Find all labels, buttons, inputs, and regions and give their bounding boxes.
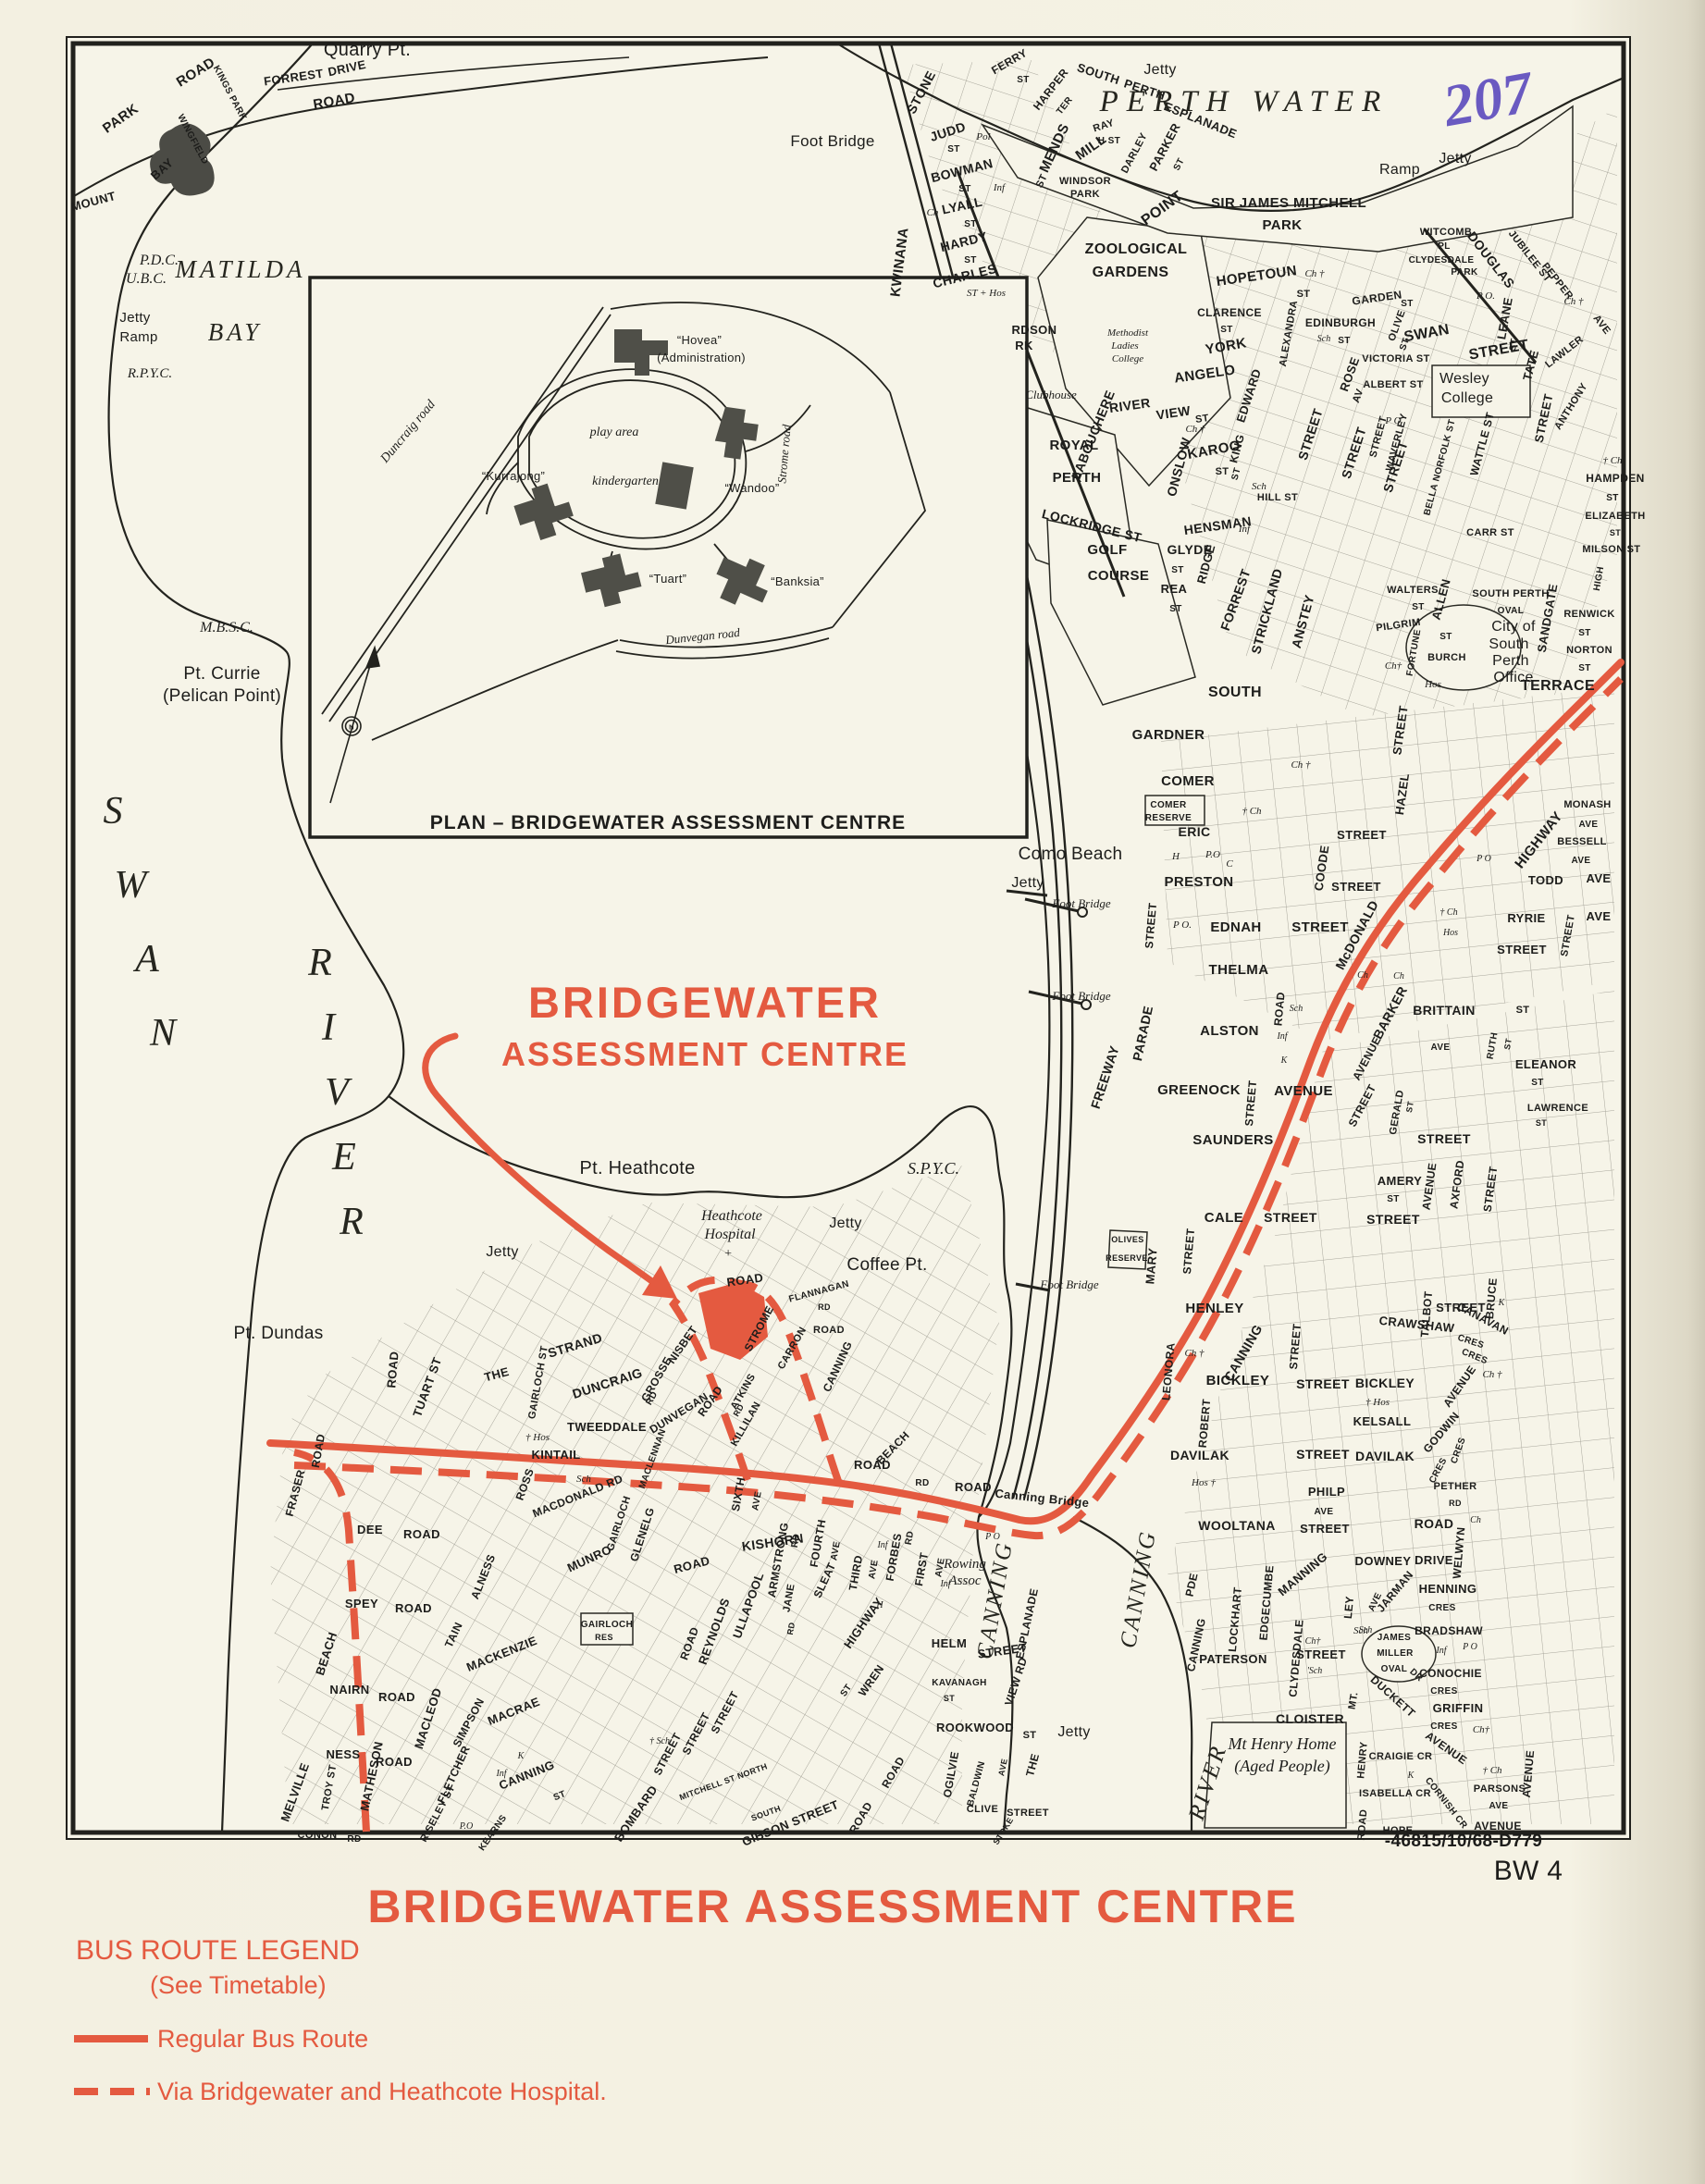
legend-heading: BUS ROUTE LEGEND <box>76 1935 360 1966</box>
map-label: ST <box>1610 528 1621 537</box>
map-label: Inf <box>1238 524 1252 535</box>
map-label: PERTH <box>1053 470 1102 486</box>
map-label: H <box>875 1600 883 1610</box>
map-label: † Hos <box>1365 1397 1390 1408</box>
map-label: STREET <box>1331 880 1381 894</box>
map-label: Ch † <box>1184 1348 1205 1359</box>
map-label: HENLEY <box>1185 1301 1243 1316</box>
map-label: Sch <box>1317 334 1330 344</box>
map-label: LEY <box>1341 1596 1356 1620</box>
map-label: Inf <box>993 182 1007 193</box>
map-label: GARDENS <box>1093 265 1169 280</box>
map-label: GOLF <box>1087 542 1127 558</box>
map-label: STREET <box>1296 1647 1346 1661</box>
map-label: Ch † <box>1482 1369 1502 1380</box>
map-label: AVE <box>1587 871 1612 885</box>
map-label: ST <box>1606 493 1619 503</box>
map-sheet: { "sheet": { "code": "BW 4", "plate": "-… <box>0 0 1705 2184</box>
map-label: N <box>149 1012 178 1055</box>
map-label: NORTON <box>1566 645 1612 656</box>
map-label: STREET <box>1337 828 1387 842</box>
map-label: BICKLEY <box>1355 1376 1415 1390</box>
map-label: U.B.C. <box>126 271 167 287</box>
map-label: (Administration) <box>657 351 746 364</box>
map-label: P O <box>984 1532 1000 1542</box>
map-label: RES <box>595 1633 613 1642</box>
map-label: Pt. Currie <box>183 664 260 684</box>
map-label: STREET <box>1366 1212 1420 1227</box>
map-label: “Banksia” <box>771 574 824 588</box>
map-label: EDNAH <box>1210 919 1261 935</box>
map-label: ST <box>1216 466 1229 477</box>
map-label: WINDSOR <box>1059 176 1111 187</box>
map-label: Hos † <box>1191 1477 1216 1488</box>
map-label: ELEANOR <box>1515 1057 1577 1071</box>
map-label: GREENOCK <box>1157 1082 1241 1098</box>
legend-subheading: (See Timetable) <box>150 1971 327 1999</box>
map-label: S.P.Y.C. <box>908 1159 959 1178</box>
map-label: COMER <box>1161 773 1215 789</box>
map-label: E <box>331 1136 356 1178</box>
legend-item-regular: Regular Bus Route <box>157 2025 368 2053</box>
map-label: † Ch <box>1439 907 1457 918</box>
map-label: CRES <box>1428 1603 1455 1613</box>
map-label: ST <box>1516 1005 1530 1016</box>
map-label: ROAD <box>395 1601 432 1615</box>
map-label: ROAD <box>403 1527 440 1541</box>
map-label: Mt Henry Home <box>1228 1734 1337 1753</box>
map-label: PARK <box>1263 217 1303 233</box>
map-label: CRES <box>1430 1686 1457 1697</box>
map-label: P O <box>1462 1642 1477 1652</box>
map-label: City of <box>1491 619 1536 635</box>
map-label: Inf <box>939 1579 951 1589</box>
map-label: PRESTON <box>1164 874 1233 890</box>
map-label: NAIRN <box>329 1683 369 1697</box>
map-label: College <box>1441 390 1493 406</box>
map-label: HENNING <box>1419 1582 1477 1596</box>
map-label: RYRIE <box>1507 911 1545 925</box>
legend-item-via-bridgewater: Via Bridgewater and Heathcote Hospital. <box>157 2078 607 2105</box>
map-label: ST <box>1220 325 1233 335</box>
map-label: ST <box>1404 1100 1415 1113</box>
map-label: STREET <box>1291 919 1349 935</box>
map-label: BESSELL <box>1557 836 1607 847</box>
callout-line1: BRIDGEWATER <box>528 978 882 1027</box>
map-label: PARK <box>1451 267 1478 278</box>
map-label: P.D.C. <box>139 253 179 268</box>
map-label: Ch† <box>1473 1724 1490 1735</box>
map-label: “Tuart” <box>649 572 687 586</box>
map-label: ZOOLOGICAL <box>1085 241 1188 257</box>
map-label: STREET <box>1417 1131 1471 1146</box>
map-label: RESERVE <box>1145 813 1192 823</box>
map-label: S <box>104 790 123 833</box>
map-label: ELIZABETH <box>1585 511 1645 522</box>
map-label: Inf <box>876 1540 888 1550</box>
map-label: (Pelican Point) <box>163 686 281 706</box>
map-label: A <box>132 938 159 981</box>
map-label: ALBERT ST <box>1363 379 1423 390</box>
map-label: Foot Bridge <box>790 132 874 150</box>
map-label: HAMPDEN <box>1586 472 1644 485</box>
map-label: Ch † <box>1563 296 1584 307</box>
map-label: Pt. Dundas <box>234 1324 324 1343</box>
map-label: DOWNEY <box>1355 1554 1412 1568</box>
map-label: PARSONS <box>1474 1783 1526 1795</box>
map-label: Hospital <box>703 1227 756 1242</box>
map-label: Quarry Pt. <box>324 40 411 60</box>
map-label: Sch <box>1359 1625 1372 1635</box>
map-label: CRES <box>1430 1721 1457 1732</box>
map-label: STREET <box>1296 1376 1350 1391</box>
map-label: STREET <box>1264 1210 1317 1225</box>
map-label: Ramp <box>119 329 157 345</box>
map-label: NESS <box>326 1747 360 1761</box>
map-label: SPEY <box>345 1597 378 1610</box>
map-label: CARR ST <box>1466 527 1514 538</box>
map-label: CONON <box>298 1830 338 1841</box>
map-label: ST <box>964 219 977 229</box>
map-label: CRAIGIE CR <box>1369 1751 1433 1762</box>
map-label: † Ch <box>1602 455 1623 466</box>
map-label: PL <box>1438 241 1451 252</box>
map-label: CLOISTER <box>1276 1711 1344 1726</box>
map-label: ST + Hos <box>967 288 1006 299</box>
map-label: Jetty <box>829 1215 861 1231</box>
map-label: ST <box>1017 75 1030 85</box>
map-label: ERIC <box>1178 824 1210 839</box>
map-label: CONOCHIE <box>1419 1667 1482 1680</box>
map-label: WALTERS <box>1387 585 1439 596</box>
map-label: K <box>1498 1298 1506 1308</box>
map-label: ST <box>1171 565 1184 575</box>
map-label: ST <box>1502 1037 1513 1050</box>
map-label: HILL ST <box>1257 492 1298 503</box>
map-label: BAY <box>208 318 263 346</box>
map-label: SAUNDERS <box>1192 1132 1273 1148</box>
map-label: RESERVE <box>1106 1253 1148 1263</box>
map-label: Ch <box>1393 971 1404 981</box>
map-label: ROYAL <box>1049 438 1098 453</box>
map-label: MONASH <box>1563 799 1611 810</box>
map-label: STREET <box>1300 1522 1350 1536</box>
map-label: P O <box>1476 854 1491 864</box>
map-label: Foot Bridge <box>1039 1277 1098 1291</box>
map-label: Pt. Heathcote <box>579 1158 695 1178</box>
map-label: I <box>321 1006 337 1049</box>
map-label: VICTORIA ST <box>1362 353 1429 364</box>
map-label: Heathcote <box>700 1208 762 1224</box>
map-label: Methodist <box>1106 327 1149 339</box>
map-label: SIR JAMES MITCHELL <box>1211 195 1366 211</box>
map-label: RENWICK <box>1563 609 1614 620</box>
map-label: † Ch <box>1482 1765 1502 1776</box>
footer-title: BRIDGEWATER ASSESSMENT CENTRE <box>367 1881 1297 1932</box>
callout-line2: ASSESSMENT CENTRE <box>501 1035 908 1073</box>
map-label: ROAD <box>1415 1516 1454 1531</box>
map-label: PERTH WATER <box>1099 85 1390 118</box>
map-label: TERRACE <box>1521 678 1595 694</box>
map-label: + <box>723 1247 732 1261</box>
map-label: RK <box>1015 339 1033 352</box>
map-label: WOOLTANA <box>1198 1518 1276 1533</box>
map-label: Inf <box>1435 1646 1447 1656</box>
map-label: RD <box>347 1834 361 1845</box>
map-label: AVE <box>1578 820 1598 830</box>
map-label: ST <box>1578 663 1591 673</box>
map-label: OVAL <box>1381 1664 1408 1674</box>
map-label: PARK <box>1070 189 1100 200</box>
map-label: KELSALL <box>1353 1414 1412 1428</box>
map-label: M.B.S.C. <box>199 620 253 635</box>
map-label: OVAL <box>1498 606 1525 616</box>
map-label: Ch <box>1357 970 1368 981</box>
map-label: CALE <box>1205 1210 1243 1226</box>
map-label: LAWRENCE <box>1527 1103 1588 1114</box>
map-label: HELM <box>932 1636 967 1650</box>
map-label: Assoc <box>948 1573 982 1588</box>
map-label: BRADSHAW <box>1415 1624 1483 1637</box>
map-label: “Wandoo” <box>725 481 780 495</box>
map-label: W <box>115 864 151 907</box>
map-label: CLYDESDALE <box>1409 255 1475 265</box>
map-label: Ch † <box>1291 759 1311 771</box>
map-label: Foot Bridge <box>1051 896 1110 910</box>
map-label: Sch <box>576 1474 591 1485</box>
map-label: ST <box>1297 289 1311 300</box>
map-label: AVENUE <box>1274 1083 1333 1099</box>
map-label: ROAD <box>854 1458 891 1472</box>
map-label: Ch <box>1470 1515 1481 1525</box>
map-label: THELMA <box>1209 962 1269 978</box>
map-label: COMER <box>1150 800 1187 810</box>
map-label: ROAD <box>955 1480 992 1494</box>
map-label: MATILDA <box>175 255 306 283</box>
map-label: H ST <box>1098 136 1120 146</box>
map-label: SOUTH <box>1208 685 1262 700</box>
map-label: † Sch <box>649 1736 670 1746</box>
map-label: ST <box>1578 628 1591 638</box>
map-label: Perth <box>1492 653 1529 669</box>
map-label: CLIVE <box>967 1804 998 1815</box>
map-label: AVE <box>1314 1507 1333 1517</box>
map-label: ST <box>1387 1194 1400 1204</box>
map-label: GARDNER <box>1132 727 1205 743</box>
map-label: † Ch <box>1242 806 1262 817</box>
map-label: RD <box>818 1302 831 1312</box>
map-label: BURCH <box>1427 652 1466 663</box>
map-label: AVE <box>1571 856 1590 866</box>
map-label: South <box>1489 636 1528 652</box>
map-label: ST <box>1536 1118 1547 1128</box>
map-label: CLARENCE <box>1197 306 1262 319</box>
map-label: K <box>517 1751 525 1761</box>
map-label: Foot Bridge <box>1051 989 1110 1003</box>
map-label: GRIFFIN <box>1433 1701 1484 1715</box>
map-label: ST <box>1439 632 1452 642</box>
map-label: Jetty <box>119 310 150 326</box>
map-label: AVENUE <box>1474 1820 1522 1832</box>
map-label: ST <box>944 1694 955 1703</box>
map-label: DRIVE <box>1415 1553 1453 1567</box>
map-label: EDINBURGH <box>1305 316 1376 329</box>
map-label: REA <box>1161 582 1188 596</box>
map-label: P O <box>1384 415 1401 426</box>
map-label: STREET <box>1497 943 1547 956</box>
map-label: PATERSON <box>1199 1652 1267 1666</box>
map-label: “Kurrajong” <box>482 469 545 483</box>
map-label: Sch <box>1290 1004 1303 1014</box>
map-label: K <box>1280 1055 1289 1066</box>
map-label: ST <box>1627 544 1641 555</box>
map-label: Jetty <box>486 1244 518 1260</box>
map-label: Hos <box>1442 928 1458 938</box>
map-label: Ladies <box>1110 340 1138 352</box>
map-label: Ch † <box>1304 268 1325 279</box>
map-label: Jetty <box>1011 875 1044 891</box>
map-label: WITCOMB <box>1420 227 1473 238</box>
map-label: AVE <box>1587 909 1612 923</box>
map-label: STREET <box>1296 1447 1350 1462</box>
map-label: R <box>339 1201 364 1243</box>
map-label: COURSE <box>1088 568 1150 584</box>
map-label: Ch <box>927 207 939 218</box>
map-label: BRITTAIN <box>1413 1003 1476 1018</box>
map-label: ALSTON <box>1200 1023 1259 1039</box>
map-label: Como Beach <box>1019 845 1123 864</box>
map-label: College <box>1112 353 1143 364</box>
map-label: Clubhouse <box>1025 388 1077 401</box>
map-label: Ch † <box>1185 424 1205 435</box>
sheet-code: BW 4 <box>1494 1856 1563 1886</box>
map-label: AMERY <box>1378 1174 1422 1188</box>
plate-number: -46815/10/68-D779 <box>1385 1832 1543 1851</box>
inset-caption: PLAN – BRIDGEWATER ASSESSMENT CENTRE <box>430 812 906 833</box>
map-label: Ramp <box>1379 162 1420 178</box>
map-label: play area <box>589 426 639 439</box>
map-label: H <box>1171 851 1180 862</box>
map-label: AVE <box>1489 1801 1508 1811</box>
map-label: PETHER <box>1433 1481 1476 1492</box>
map-label: DAVILAK <box>1355 1449 1415 1463</box>
map-label: Ch† <box>1385 660 1402 672</box>
map-label: DAVILAK <box>1170 1448 1229 1462</box>
map-label: ROOKWOOD <box>936 1721 1014 1734</box>
map-label: Sch <box>1252 481 1266 492</box>
map-label: RDSON <box>1012 323 1057 337</box>
map-label: RD <box>915 1478 929 1488</box>
map-label: DEE <box>357 1523 383 1536</box>
map-label: V <box>325 1071 352 1114</box>
map-label: MILLER <box>1377 1648 1414 1659</box>
map-label: ST <box>1412 602 1425 612</box>
map-label: KINTAIL <box>531 1448 580 1462</box>
map-label: ISABELLA CR <box>1359 1788 1431 1799</box>
map-label: kindergarten <box>592 475 659 488</box>
map-label: MILSON <box>1582 544 1624 555</box>
map-label: RD <box>1449 1499 1462 1508</box>
map-canvas: N PLAN – BRIDGEWATER ASSESSMENT CENTRE B… <box>0 0 1705 2184</box>
map-label: STREET <box>1007 1808 1049 1819</box>
map-label: ST <box>1169 604 1182 614</box>
map-label: R <box>307 942 332 984</box>
map-label: P.O <box>1205 849 1220 860</box>
map-label: STREET <box>1436 1301 1486 1314</box>
map-label: Jetty <box>1057 1724 1090 1740</box>
map-label: Hos <box>1424 679 1441 690</box>
map-label: AVE <box>1430 1043 1450 1053</box>
map-label: ST <box>947 144 960 154</box>
map-label: “Hovea” <box>677 333 722 347</box>
map-label: Coffee Pt. <box>846 1255 927 1275</box>
inset-compass-n: N <box>349 723 354 732</box>
map-label: Pol <box>975 131 990 142</box>
map-label: (Aged People) <box>1234 1757 1329 1776</box>
map-label: TWEEDDALE <box>567 1420 647 1434</box>
map-label: ST <box>964 255 977 265</box>
map-label: Jetty <box>1143 62 1176 78</box>
map-label: SOUTH PERTH <box>1472 588 1549 599</box>
map-label: ST <box>1401 299 1414 309</box>
map-label: KAVANAGH <box>932 1678 987 1688</box>
map-label: P O. <box>1476 290 1495 302</box>
map-label: ROAD <box>813 1325 845 1336</box>
map-label: GLYDE <box>1168 542 1213 557</box>
map-label: K <box>1407 1771 1415 1781</box>
map-label: ST <box>1338 336 1351 346</box>
map-label: PHILP <box>1308 1485 1345 1499</box>
map-label: 'Sch <box>1307 1666 1323 1676</box>
map-label: Jetty <box>1439 151 1471 167</box>
map-label: ST <box>1531 1078 1544 1088</box>
map-label: GAIRLOCH <box>581 1620 634 1630</box>
map-label: OLIVES <box>1111 1235 1143 1244</box>
map-label: ST <box>958 184 971 194</box>
map-label: Wesley <box>1439 371 1489 387</box>
map-label: P O. <box>1172 919 1192 931</box>
map-label: ST <box>1508 338 1520 352</box>
map-label: Ch† <box>1305 1636 1322 1647</box>
map-label: Rowing <box>943 1557 986 1572</box>
map-label: ROAD <box>378 1690 415 1704</box>
map-label: TODD <box>1528 873 1563 887</box>
map-label: ST <box>1023 1730 1037 1741</box>
map-label: † Hos <box>525 1432 550 1443</box>
map-label: JAMES <box>1378 1633 1411 1643</box>
map-label: P.O <box>459 1821 474 1832</box>
map-label: C <box>1226 858 1233 870</box>
map-label: Inf <box>1276 1031 1288 1042</box>
map-label: R.P.Y.C. <box>127 366 172 381</box>
